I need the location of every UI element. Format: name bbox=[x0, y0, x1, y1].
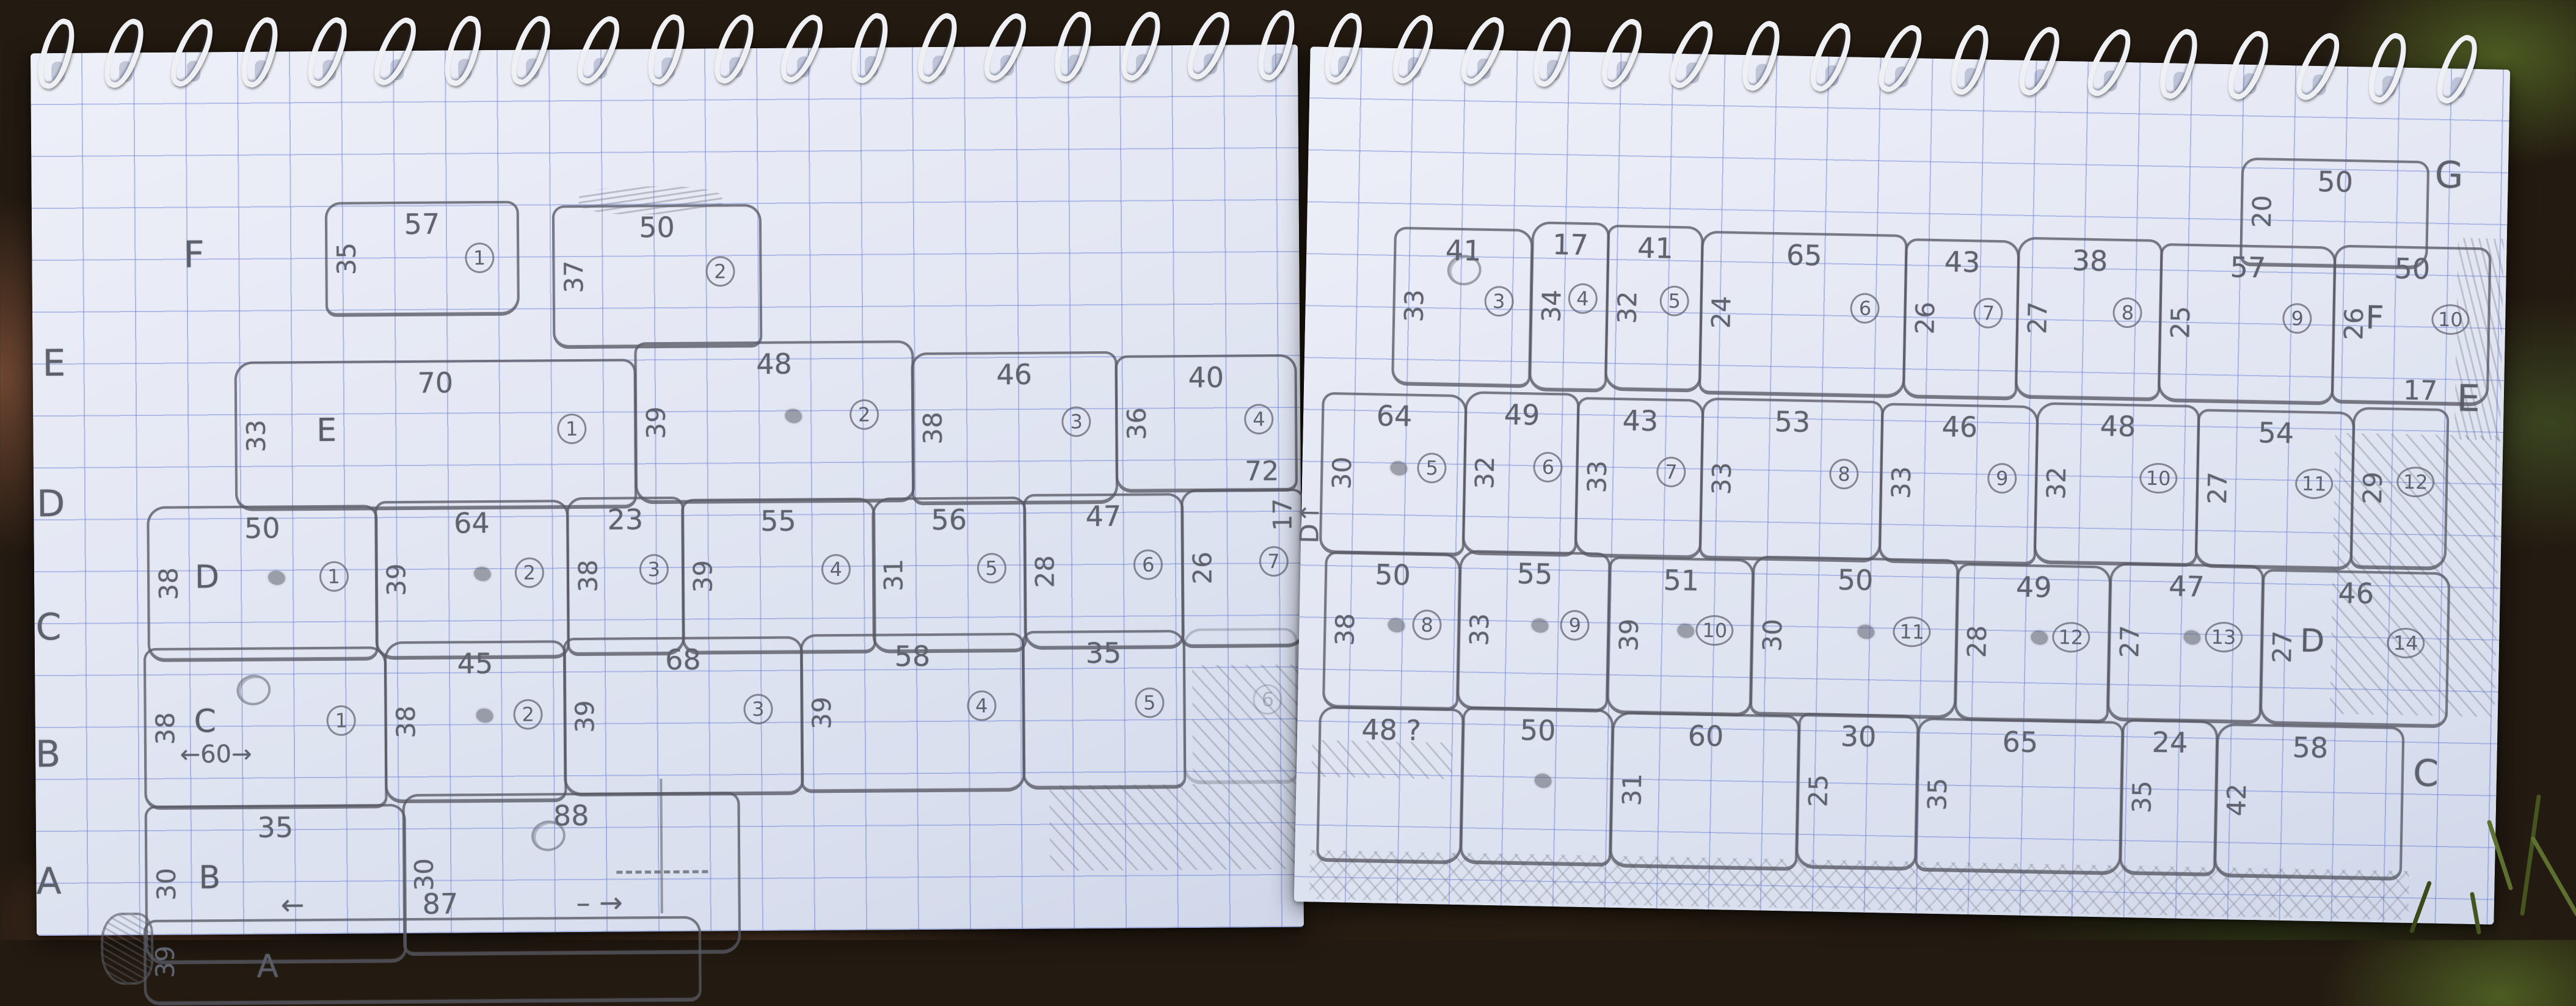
stone-width-label: 24 bbox=[2152, 726, 2188, 759]
row-label-g: G bbox=[2434, 154, 2464, 197]
stone-height-label: 32 bbox=[1469, 445, 1501, 500]
stone-height-label: 38 bbox=[573, 549, 603, 603]
stone-height-label: 35 bbox=[1922, 767, 1953, 822]
stone-height-label: 36 bbox=[1121, 396, 1152, 451]
stone-width-label: 50 bbox=[1375, 558, 1411, 591]
pencil-dot bbox=[1676, 622, 1695, 640]
pencil-dot bbox=[1389, 459, 1408, 477]
stone-width-label: 58 bbox=[894, 640, 930, 672]
stone-width-label: 49 bbox=[1504, 398, 1540, 431]
stone-height-label: 28 bbox=[1030, 544, 1060, 599]
stone-row-e-6: 49326 bbox=[1462, 391, 1580, 557]
stone-width-label: 58 bbox=[2292, 731, 2329, 764]
stone-height-label: 33 bbox=[1886, 455, 1917, 511]
stone-row-d-12: 492812 bbox=[1954, 563, 2112, 724]
stone-row-c: 2435 bbox=[2119, 719, 2219, 877]
spiral-coil bbox=[1318, 9, 1368, 87]
stone-index-badge: 9 bbox=[1987, 462, 2017, 494]
stone-height-label: 39 bbox=[570, 689, 600, 744]
stone-height-label: 39 bbox=[150, 935, 181, 990]
notebook-photo: FEDCBA57351503727033E1483924638340364503… bbox=[0, 0, 2576, 940]
stone-index-badge: 8 bbox=[2112, 297, 2142, 328]
stone-height-label: 29 bbox=[2357, 460, 2389, 516]
stone-row-letter: A bbox=[257, 949, 278, 985]
stone-height-label: 27 bbox=[2022, 290, 2053, 345]
stone-row-c: 3025 bbox=[1796, 713, 1919, 871]
stone-height-label: 38 bbox=[391, 694, 421, 749]
stone-width-label: 68 bbox=[665, 643, 701, 676]
stone-width-label: 30 bbox=[1840, 720, 1877, 753]
pencil-note: 17 bbox=[1267, 498, 1297, 531]
stone-row-d-5: 56315 bbox=[871, 497, 1027, 654]
stone-index-badge: 5 bbox=[1417, 453, 1447, 484]
stone-row-c-2: 45382 bbox=[384, 640, 567, 803]
stone-height-label: 30 bbox=[1757, 608, 1788, 663]
stone-height-label: 31 bbox=[1617, 762, 1648, 817]
stone-row-letter: D bbox=[195, 559, 219, 596]
stone-index-badge: 8 bbox=[1829, 459, 1859, 490]
stone-row-c-4: 58394 bbox=[800, 633, 1026, 793]
stone-width-label: 57 bbox=[404, 208, 440, 241]
stone-width-label: 50 bbox=[244, 511, 280, 544]
stone-index-badge: 6 bbox=[1850, 293, 1880, 324]
stone-index-badge: 1 bbox=[465, 242, 494, 273]
stone-height-label: 32 bbox=[2041, 455, 2072, 511]
row-label-c: C bbox=[35, 606, 61, 649]
stone-row-d-4: 55394 bbox=[681, 498, 876, 655]
stone-index-badge: 6 bbox=[1533, 451, 1563, 483]
stone-row-d-2: 64392 bbox=[374, 500, 570, 660]
stone-height-label: 24 bbox=[1706, 285, 1737, 340]
stone-width-label: 48 bbox=[756, 348, 792, 381]
stone-row-letter: C bbox=[194, 703, 216, 740]
arrow-left: ← bbox=[281, 888, 305, 921]
stone-width-label: 35 bbox=[257, 811, 293, 844]
spiral-coil bbox=[1181, 7, 1237, 84]
stone-height-label: 31 bbox=[878, 547, 909, 602]
stone-extra-dimension: ←60→ bbox=[180, 740, 252, 769]
stone-height-label: 37 bbox=[559, 249, 589, 304]
stone-width-label: 65 bbox=[1786, 238, 1822, 272]
spiral-coil bbox=[774, 10, 831, 87]
stone-row-e-3: 46383 bbox=[911, 351, 1118, 505]
stone-width-label: 43 bbox=[1944, 245, 1981, 279]
stone-index-badge: 5 bbox=[1135, 687, 1164, 718]
stone-row-d-14: 4627D14 bbox=[2260, 569, 2451, 728]
stone-height-label: 33 bbox=[241, 408, 272, 463]
spiral-coil bbox=[1527, 13, 1577, 90]
spiral-coil bbox=[2221, 26, 2276, 104]
spacer bbox=[304, 904, 422, 905]
grass-blade bbox=[2530, 836, 2576, 917]
pencil-dot bbox=[267, 569, 286, 586]
stone-row-d-6: 47286 bbox=[1023, 493, 1185, 650]
stone-index-badge: 6 bbox=[1253, 684, 1283, 715]
stone-row-letter: D bbox=[2300, 623, 2325, 660]
stone-width-label: 47 bbox=[1085, 500, 1121, 533]
stone-row-c: 50 bbox=[1460, 706, 1614, 867]
stone-width-label: 65 bbox=[2002, 725, 2039, 759]
stone-width-label: 50 bbox=[639, 211, 675, 244]
stone-index-badge: 1 bbox=[319, 561, 348, 592]
stone-row-f-6: 65246 bbox=[1698, 231, 1908, 398]
stone-height-label: 38 bbox=[1330, 602, 1361, 657]
row-label-d: D bbox=[37, 483, 65, 525]
stone-height-label: 27 bbox=[2114, 614, 2145, 669]
pencil-dot bbox=[473, 566, 492, 583]
stone-index-badge: 2 bbox=[515, 557, 544, 588]
stone-row-d-13: 472713 bbox=[2107, 563, 2265, 724]
stone-index-badge: 7 bbox=[1259, 546, 1288, 577]
spiral-coil bbox=[1803, 18, 1858, 96]
stone-row-e-9: 46339 bbox=[1879, 403, 2039, 566]
stone-height-label: 34 bbox=[1536, 278, 1567, 334]
stone-height-label: 39 bbox=[1614, 607, 1645, 663]
stone-height-label: 39 bbox=[641, 395, 671, 450]
stone-height-label: 33 bbox=[1464, 602, 1495, 657]
stone-width-label: 46 bbox=[2338, 577, 2374, 610]
stone-row-c: 6031 bbox=[1609, 712, 1800, 871]
spiral-coil bbox=[1386, 10, 1440, 88]
spiral-coil bbox=[504, 12, 557, 89]
stone-width-label: 50 bbox=[2317, 165, 2354, 199]
stone-width-label: 23 bbox=[607, 503, 643, 536]
row-label-a: A bbox=[36, 860, 62, 903]
spiral-coil bbox=[1736, 17, 1786, 95]
stone-index-badge: 4 bbox=[1568, 283, 1598, 315]
spiral-coil bbox=[845, 9, 894, 87]
spiral-coil bbox=[2153, 25, 2203, 103]
stone-row-e-11: 542711 bbox=[2195, 409, 2356, 570]
stone-width-label: 43 bbox=[1622, 404, 1659, 437]
stone-row-f-5: 41325 bbox=[1604, 225, 1704, 393]
stone-width-label: 54 bbox=[2258, 416, 2294, 450]
stone-height-label: 38 bbox=[917, 401, 948, 456]
stone-height-label: 32 bbox=[1612, 280, 1643, 335]
stone-width-label-above: 72 bbox=[1245, 456, 1279, 487]
stone-row-c: 5842 bbox=[2214, 723, 2405, 881]
stone-width-label: 60 bbox=[1687, 719, 1724, 753]
stone-height-label: 33 bbox=[1399, 278, 1430, 334]
stone-row-e-7: 43337 bbox=[1574, 397, 1705, 559]
arrow-right: – → bbox=[576, 886, 623, 920]
stone-height-label: 35 bbox=[2127, 769, 2158, 825]
stone-height-label: 27 bbox=[2267, 619, 2298, 674]
stone-index-badge: 1 bbox=[327, 705, 356, 735]
stone-row-c-5: 355 bbox=[1022, 630, 1187, 790]
stone-width-label: 50 bbox=[1837, 563, 1874, 597]
pencil-scribble bbox=[579, 186, 722, 215]
stone-index-badge: 7 bbox=[1973, 297, 2003, 329]
stone-width-label: 53 bbox=[1774, 405, 1811, 439]
stone-index-badge: 3 bbox=[639, 554, 669, 585]
dimension-87: ←87– → bbox=[281, 886, 623, 922]
stone-height-label: 25 bbox=[1803, 762, 1834, 818]
stone-index-badge: 10 bbox=[2139, 462, 2178, 494]
stone-height-label: 33 bbox=[1582, 449, 1613, 505]
stone-index-badge: 3 bbox=[1061, 407, 1091, 437]
spiral-coil bbox=[438, 12, 487, 90]
stone-height-label: 38 bbox=[150, 701, 181, 756]
stone-index-badge: 10 bbox=[2431, 304, 2470, 335]
spiral-coil bbox=[2430, 31, 2484, 108]
stone-row-f-8: 38278 bbox=[2015, 237, 2163, 402]
stone-row-d-9: 55339 bbox=[1457, 550, 1611, 713]
stone-width-label: 17 bbox=[1552, 228, 1589, 261]
stone-width-label: 64 bbox=[454, 506, 490, 539]
stone-row-letter: E bbox=[316, 412, 337, 449]
stone-row-e-2: 48392 bbox=[634, 340, 915, 504]
stone-height-label: 39 bbox=[688, 549, 718, 603]
pencil-dot bbox=[2029, 629, 2049, 647]
row-label-c: C bbox=[2412, 752, 2439, 795]
pencil-ring bbox=[235, 672, 273, 708]
stone-width-label: 70 bbox=[417, 366, 453, 399]
stone-index-badge: 5 bbox=[977, 553, 1006, 583]
stone-index-badge: 13 bbox=[2204, 622, 2243, 653]
stone-height-label: 20 bbox=[2246, 184, 2277, 239]
spacer bbox=[458, 903, 576, 903]
grass-blade bbox=[2520, 794, 2541, 916]
stone-index-badge: 5 bbox=[1659, 286, 1689, 317]
spiral-coil bbox=[1945, 21, 1995, 98]
stone-row-f-3: 41333 bbox=[1391, 227, 1534, 388]
stone-height-label: 33 bbox=[1706, 450, 1737, 506]
stone-height-label: 42 bbox=[2221, 772, 2252, 828]
spiral-coil bbox=[1049, 8, 1097, 86]
stone-width-label: 57 bbox=[2230, 250, 2266, 284]
stone-row-d-3: 23383 bbox=[566, 497, 685, 656]
stone-index-badge: 11 bbox=[1893, 616, 1931, 647]
spiral-coil bbox=[367, 12, 424, 90]
spiral-coil bbox=[235, 13, 284, 91]
stone-index-badge: 4 bbox=[821, 554, 851, 585]
spiral-coil bbox=[1115, 7, 1167, 85]
stone-index-badge: 7 bbox=[1656, 456, 1686, 487]
pencil-note: D↑ bbox=[1294, 502, 1325, 544]
stone-row-f-4: 17344 bbox=[1529, 221, 1610, 392]
stone-row-f-7: 43267 bbox=[1902, 238, 2020, 401]
row-label-e: E bbox=[42, 342, 65, 385]
stone-row-letter: F bbox=[2365, 300, 2384, 337]
spiral-coil bbox=[1252, 7, 1301, 84]
stone-row-c-1: 38C←60→1 bbox=[144, 646, 388, 810]
spiral-coil bbox=[911, 9, 964, 86]
pencil-dot bbox=[475, 707, 495, 724]
stone-row-f-9: 57259 bbox=[2158, 243, 2337, 405]
stone-width-label-above: 17 bbox=[2403, 375, 2438, 407]
stone-row-c: 48 ? bbox=[1316, 706, 1464, 865]
stone-height-label: 25 bbox=[2165, 294, 2196, 350]
stone-index-badge: 4 bbox=[967, 690, 996, 721]
stone-index-badge: 2 bbox=[514, 699, 543, 729]
stone-width-label: 48 bbox=[2100, 409, 2136, 443]
stone-index-badge: 6 bbox=[1133, 550, 1163, 580]
notebook-page-right: GEC5020413331734441325652464326738278572… bbox=[1294, 46, 2511, 924]
stone-width-label: 41 bbox=[1637, 231, 1674, 265]
pencil-dot bbox=[784, 407, 803, 425]
stone-row-e-10: 483210 bbox=[2034, 402, 2200, 567]
stone-row-e-1: 7033E1 bbox=[235, 359, 638, 511]
stone-index-badge: 12 bbox=[2051, 622, 2090, 653]
stone-height-label: 39 bbox=[381, 552, 412, 607]
stone-row-c: 6535 bbox=[1915, 718, 2124, 875]
stone-width-label: 51 bbox=[1663, 564, 1700, 597]
pencil-dot bbox=[1386, 616, 1406, 634]
stone-index-badge: 11 bbox=[2295, 468, 2334, 499]
stone-height-label: 39 bbox=[807, 685, 837, 740]
dimension-value: 87 bbox=[422, 887, 458, 920]
stone-width-label: 45 bbox=[457, 647, 493, 680]
stone-width-label: 50 bbox=[1519, 713, 1556, 747]
spiral-coil bbox=[2012, 22, 2067, 100]
stone-width-label: 56 bbox=[931, 503, 967, 536]
stone-row-d-10: 513910 bbox=[1606, 556, 1755, 717]
spiral-coil bbox=[570, 11, 627, 89]
spiral-coil bbox=[642, 11, 691, 89]
stone-width-label: 55 bbox=[1516, 557, 1553, 591]
spiral-coil bbox=[164, 14, 220, 92]
spiral-coil bbox=[2362, 29, 2412, 107]
stone-index-badge: 10 bbox=[1695, 615, 1734, 646]
stone-index-badge: 2 bbox=[705, 256, 735, 286]
stone-index-badge: 12 bbox=[2396, 466, 2435, 497]
stone-index-badge: 14 bbox=[2387, 627, 2425, 658]
stone-index-badge: 2 bbox=[850, 399, 879, 429]
stone-height-label: 28 bbox=[1962, 614, 1993, 669]
stone-index-badge: 3 bbox=[743, 694, 773, 724]
stone-width-label: 35 bbox=[1085, 636, 1121, 669]
pencil-hatching bbox=[1049, 784, 1306, 871]
stone-width-label: 47 bbox=[2169, 569, 2205, 603]
pencil-dot bbox=[1856, 623, 1876, 641]
stone-index-badge: 9 bbox=[2282, 303, 2312, 334]
stone-row-letter: B bbox=[198, 859, 220, 896]
stone-row-a: 39A bbox=[144, 916, 702, 1005]
stone-row-d-11: 503011 bbox=[1750, 555, 1959, 719]
stone-height-label: 35 bbox=[332, 231, 362, 286]
stone-index-badge: 4 bbox=[1244, 404, 1273, 434]
stone-row-e-8: 53338 bbox=[1699, 398, 1884, 563]
spiral-coil bbox=[32, 15, 81, 93]
stone-width-label: 55 bbox=[760, 505, 796, 538]
stone-row-d-8: 50388 bbox=[1322, 551, 1461, 711]
stone-row-f-2: 50372 bbox=[552, 204, 763, 349]
spiral-coil bbox=[1595, 14, 1649, 92]
stone-height-label: 38 bbox=[153, 556, 184, 611]
pencil-dot bbox=[1533, 772, 1552, 790]
pencil-dot bbox=[2182, 629, 2202, 646]
stone-height-label: 26 bbox=[1910, 290, 1941, 346]
stone-height-label: 26 bbox=[2338, 296, 2370, 352]
row-label-b: B bbox=[35, 733, 61, 776]
stone-height-label: 26 bbox=[1187, 541, 1218, 596]
stone-row-e-5: 64305 bbox=[1319, 392, 1468, 557]
notebook-page-left: FEDCBA57351503727033E1483924638340364503… bbox=[31, 45, 1304, 936]
spiral-coil bbox=[977, 8, 1034, 86]
stone-width-label: 46 bbox=[996, 358, 1032, 391]
stone-width-label: 50 bbox=[2394, 252, 2431, 285]
pencil-dot bbox=[1530, 617, 1549, 635]
stone-width-label: 46 bbox=[1941, 410, 1978, 443]
stone-height-label: 27 bbox=[2202, 460, 2233, 516]
stone-index-badge: 3 bbox=[1484, 286, 1514, 317]
row-label-f: F bbox=[183, 233, 205, 276]
spiral-coil bbox=[98, 15, 150, 92]
stone-height-label: 30 bbox=[151, 857, 182, 912]
stone-row-c-3: 68393 bbox=[563, 636, 804, 796]
stone-index-badge: 1 bbox=[557, 414, 586, 444]
stone-index-badge: 9 bbox=[1560, 610, 1590, 641]
stone-height-label: 30 bbox=[1326, 445, 1358, 500]
stone-row-f-1: 57351 bbox=[325, 201, 520, 317]
spiral-coil bbox=[708, 10, 760, 88]
stone-width-label: 49 bbox=[2016, 570, 2053, 604]
stone-index-badge: 8 bbox=[1412, 610, 1442, 641]
spiral-coil bbox=[301, 13, 354, 90]
stone-row-e-12: 291712 bbox=[2350, 407, 2450, 570]
stone-row-d-1: 5038D1 bbox=[147, 505, 379, 662]
stone-width-label: 48 ? bbox=[1361, 713, 1422, 747]
stone-width-label: 64 bbox=[1376, 399, 1413, 432]
stone-row-c-6: 6 bbox=[1183, 628, 1299, 784]
stone-width-label: 40 bbox=[1188, 361, 1224, 394]
stone-width-label: 38 bbox=[2072, 244, 2108, 277]
